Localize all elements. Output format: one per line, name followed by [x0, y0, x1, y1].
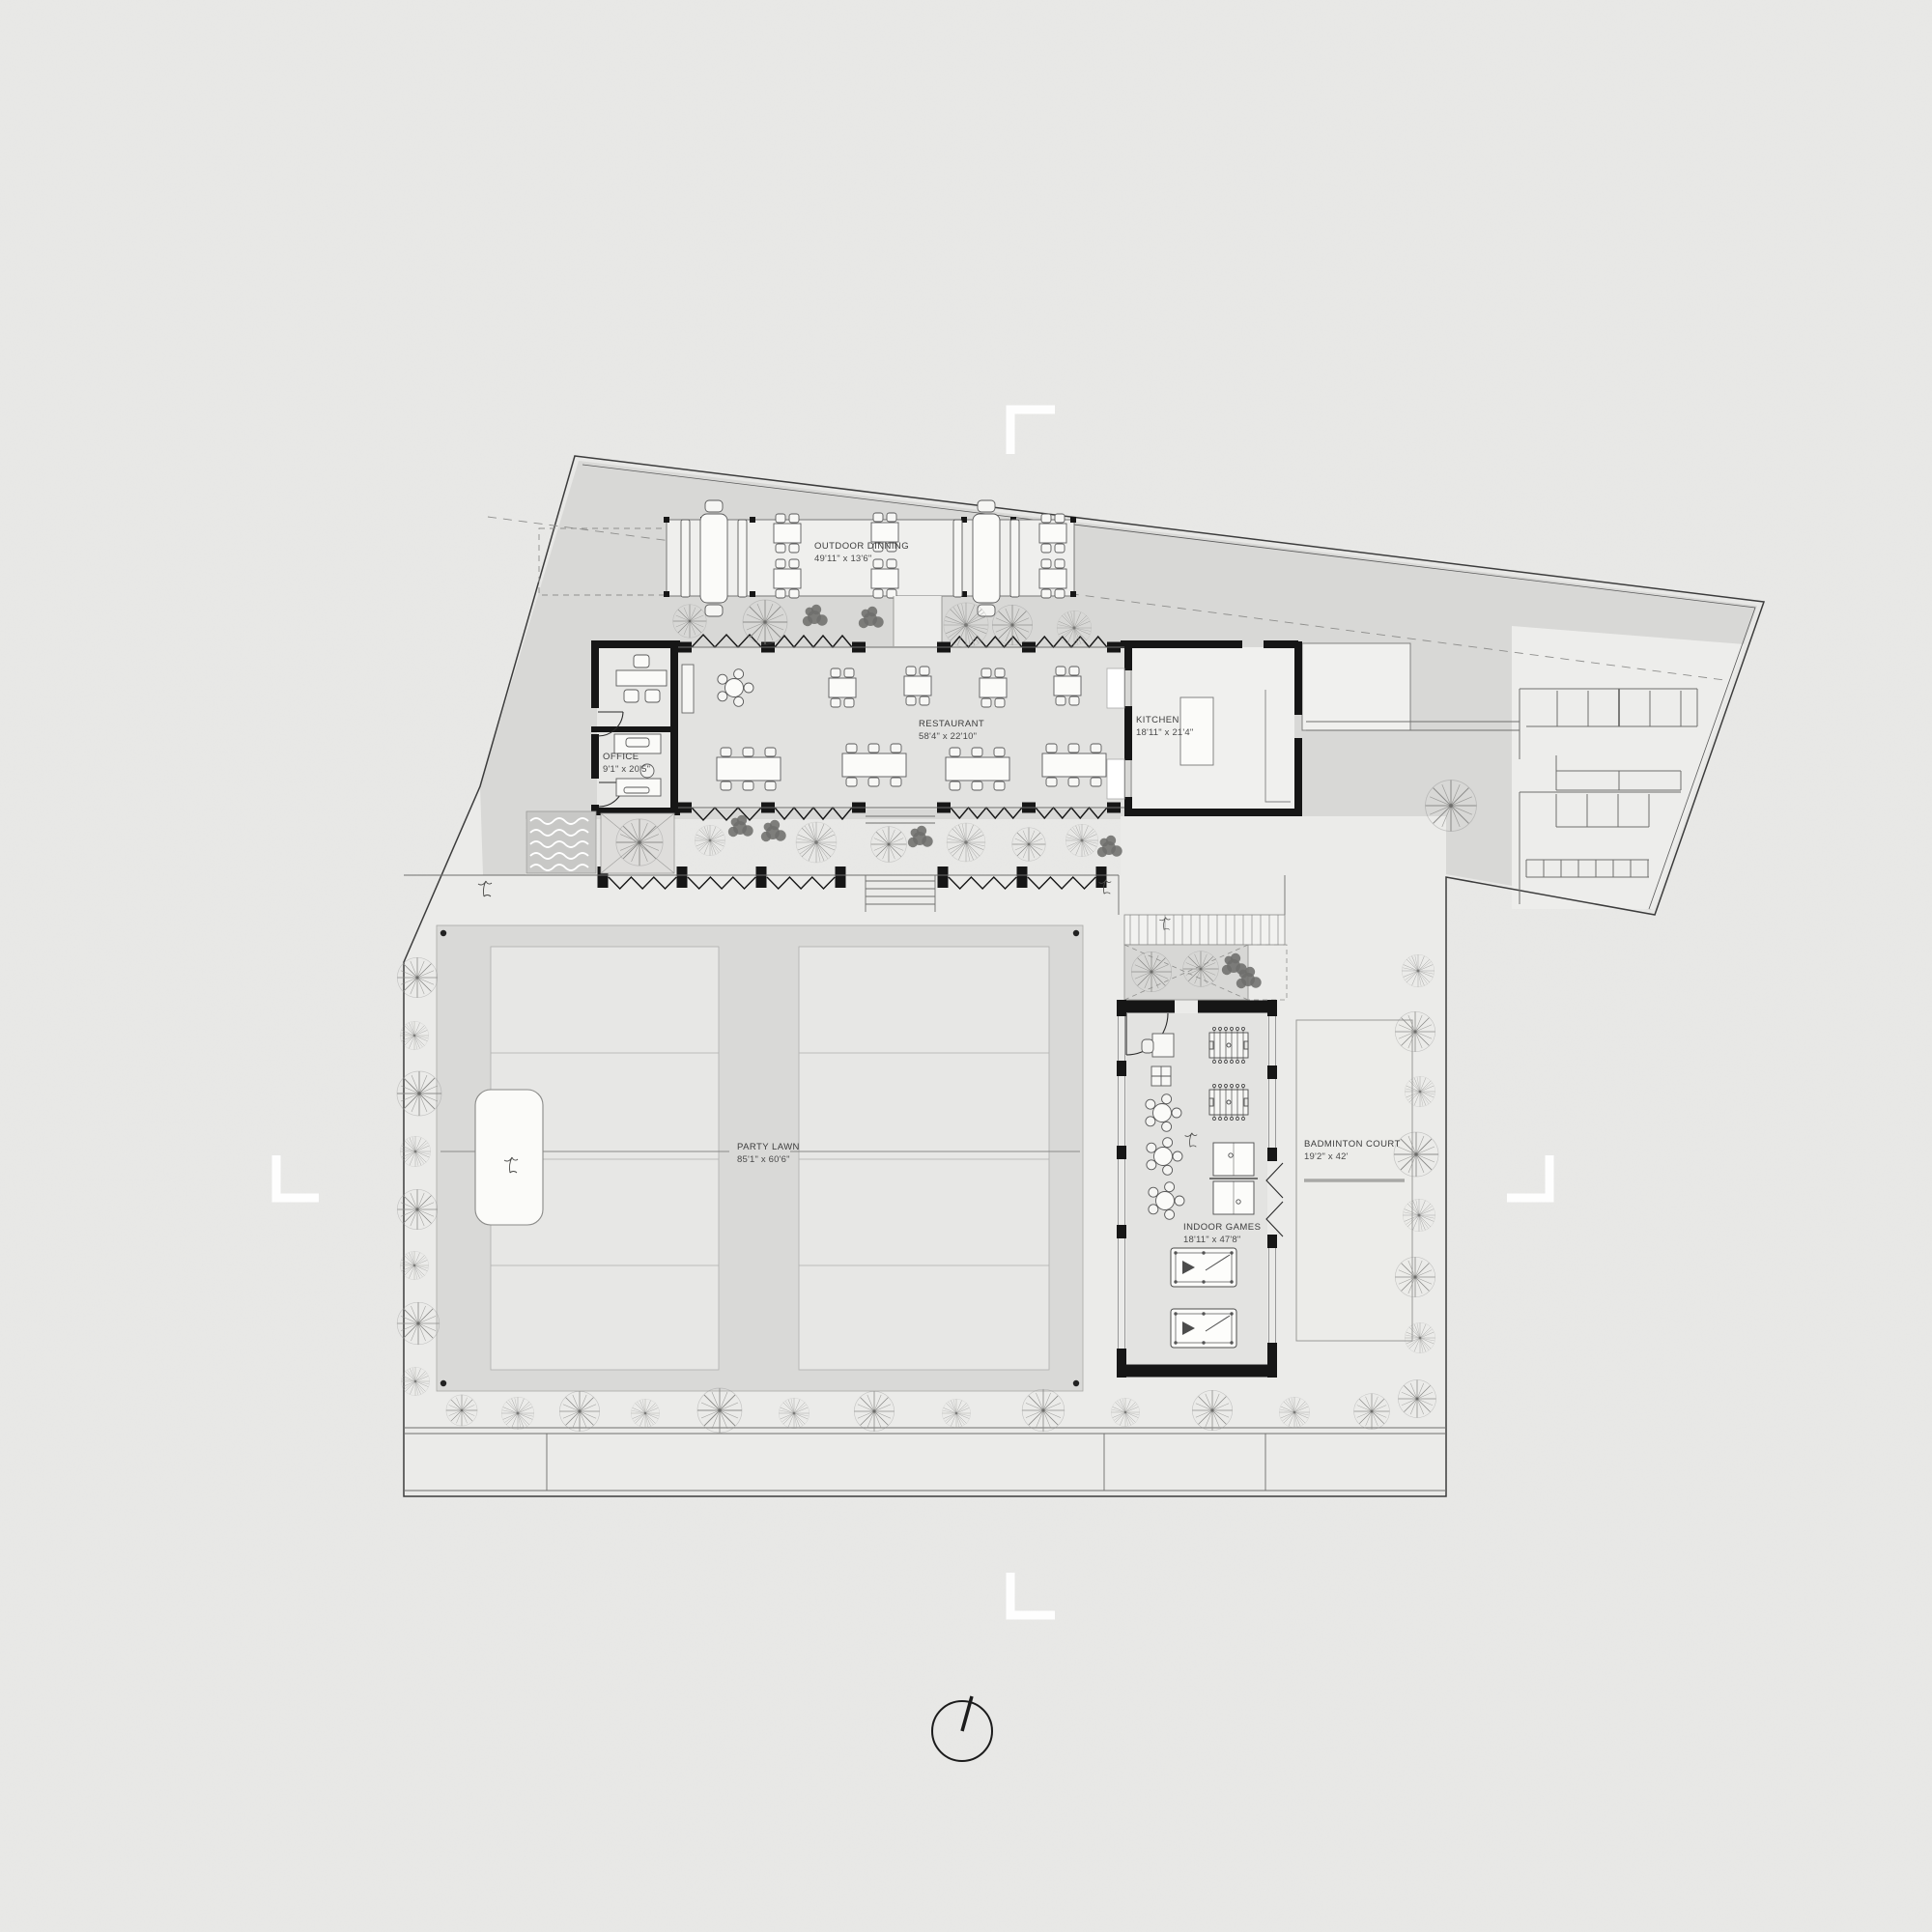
room-name: KITCHEN [1136, 715, 1193, 727]
room-label-indoor-games: INDOOR GAMES 18'11" x 47'8" [1183, 1222, 1261, 1247]
lawn-panel-right [799, 947, 1049, 1370]
indoor-games-room [1117, 1000, 1283, 1378]
room-label-badminton-court: BADMINTON COURT 19'2" x 42' [1304, 1139, 1401, 1164]
room-name: PARTY LAWN [737, 1142, 800, 1154]
room-dims: 49'11" x 13'6" [814, 554, 909, 566]
room-name: INDOOR GAMES [1183, 1222, 1261, 1235]
room-dims: 18'11" x 21'4" [1136, 727, 1193, 740]
room-dims: 9'1" x 20'5" [603, 764, 650, 777]
room-name: BADMINTON COURT [1304, 1139, 1401, 1151]
room-label-kitchen: KITCHEN 18'11" x 21'4" [1136, 715, 1193, 740]
floor-plan-canvas: OUTDOOR DINNING 49'11" x 13'6" RESTAURAN… [0, 0, 1932, 1932]
room-label-office: OFFICE 9'1" x 20'5" [603, 752, 650, 777]
room-dims: 85'1" x 60'6" [737, 1154, 800, 1167]
stage-platform [475, 1090, 543, 1225]
room-label-outdoor-dining: OUTDOOR DINNING 49'11" x 13'6" [814, 541, 909, 566]
room-label-restaurant: RESTAURANT 58'4" x 22'10" [919, 719, 984, 744]
badminton-court [1296, 1020, 1412, 1341]
floor-plan-drawing [0, 0, 1932, 1932]
room-label-party-l awn: PARTY LAWN 85'1" x 60'6" [737, 1142, 800, 1167]
store-room [1302, 643, 1410, 730]
room-name: OFFICE [603, 752, 650, 764]
room-dims: 58'4" x 22'10" [919, 731, 984, 744]
room-dims: 19'2" x 42' [1304, 1151, 1401, 1164]
entry-connector [894, 596, 942, 646]
room-name: OUTDOOR DINNING [814, 541, 909, 554]
room-name: RESTAURANT [919, 719, 984, 731]
room-dims: 18'11" x 47'8" [1183, 1235, 1261, 1247]
